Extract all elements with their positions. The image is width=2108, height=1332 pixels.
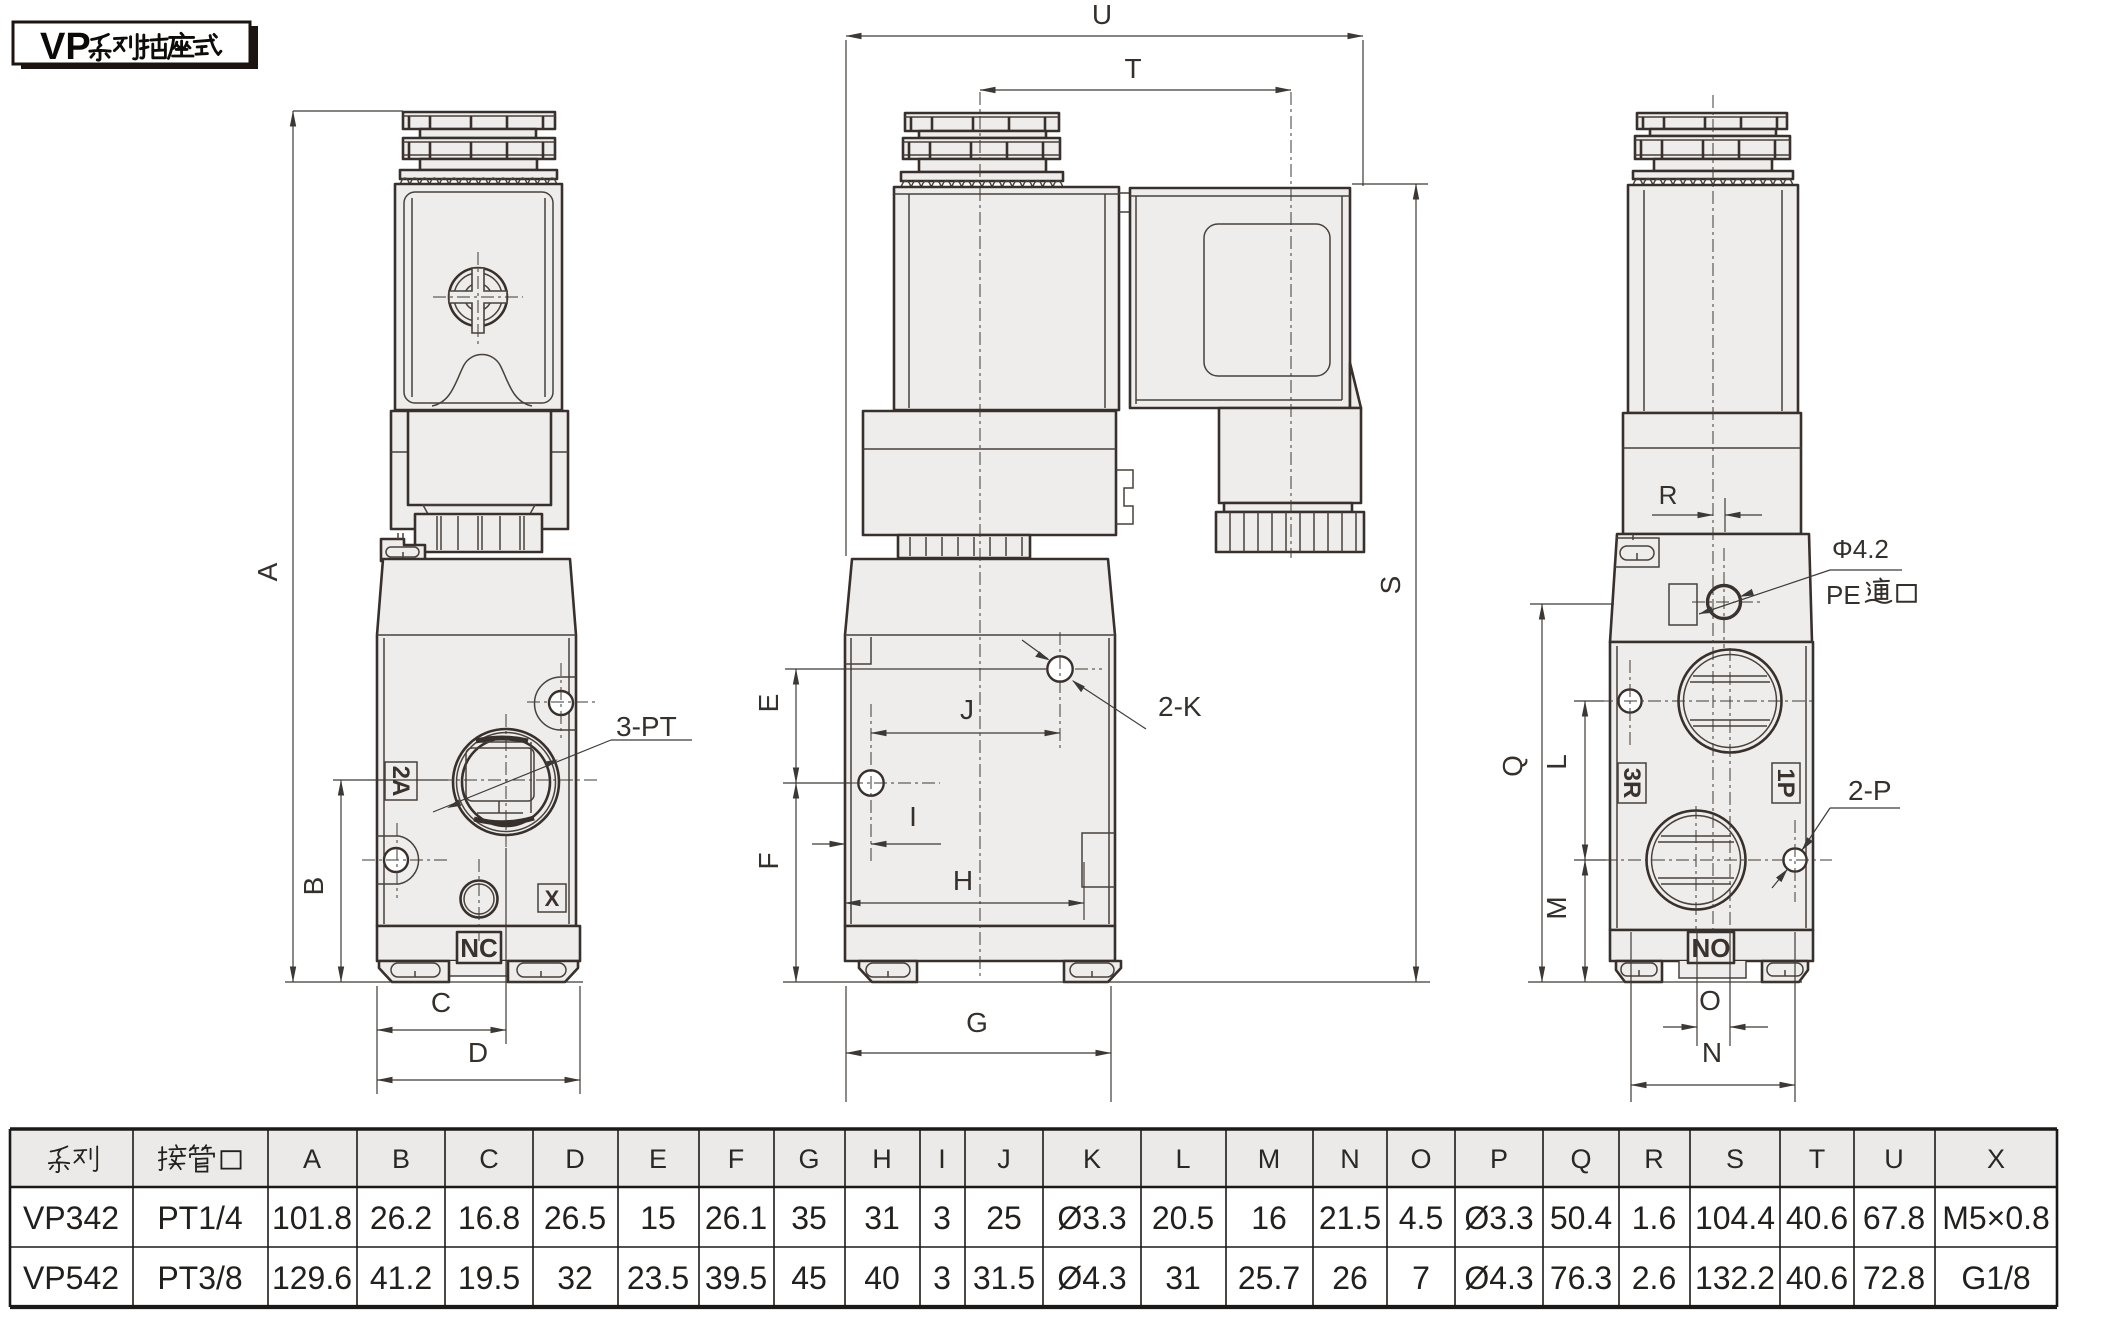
- svg-text:D: D: [565, 1144, 585, 1174]
- svg-text:Ø3.3: Ø3.3: [1464, 1200, 1533, 1236]
- svg-text:3-PT: 3-PT: [616, 711, 677, 742]
- svg-text:67.8: 67.8: [1863, 1200, 1925, 1236]
- svg-text:1P: 1P: [1772, 768, 1799, 797]
- svg-text:X: X: [1987, 1144, 2005, 1174]
- svg-text:O: O: [1699, 985, 1721, 1016]
- svg-text:19.5: 19.5: [458, 1260, 520, 1296]
- svg-text:Ø3.3: Ø3.3: [1057, 1200, 1126, 1236]
- svg-text:2-P: 2-P: [1848, 775, 1892, 806]
- svg-text:A: A: [252, 562, 283, 581]
- svg-text:Q: Q: [1497, 755, 1528, 777]
- svg-text:PT3/8: PT3/8: [157, 1260, 242, 1296]
- svg-text:U: U: [1884, 1144, 1904, 1174]
- svg-text:16.8: 16.8: [458, 1200, 520, 1236]
- svg-text:S: S: [1726, 1144, 1744, 1174]
- svg-text:40: 40: [864, 1260, 900, 1296]
- svg-text:J: J: [960, 694, 974, 725]
- svg-text:101.8: 101.8: [272, 1200, 352, 1236]
- svg-text:26: 26: [1332, 1260, 1368, 1296]
- svg-text:R: R: [1644, 1144, 1664, 1174]
- svg-text:23.5: 23.5: [627, 1260, 689, 1296]
- svg-text:O: O: [1410, 1144, 1431, 1174]
- svg-text:U: U: [1092, 0, 1112, 30]
- svg-text:76.3: 76.3: [1550, 1260, 1612, 1296]
- svg-text:K: K: [1083, 1144, 1101, 1174]
- svg-text:72.8: 72.8: [1863, 1260, 1925, 1296]
- svg-text:L: L: [1541, 754, 1572, 770]
- svg-text:M: M: [1258, 1144, 1281, 1174]
- svg-text:T: T: [1124, 53, 1141, 84]
- svg-text:Q: Q: [1570, 1144, 1591, 1174]
- svg-text:G1/8: G1/8: [1961, 1260, 2030, 1296]
- svg-text:T: T: [1809, 1144, 1826, 1174]
- svg-text:C: C: [479, 1144, 499, 1174]
- svg-text:3: 3: [933, 1260, 951, 1296]
- svg-text:B: B: [298, 877, 329, 896]
- svg-text:25.7: 25.7: [1238, 1260, 1300, 1296]
- svg-text:39.5: 39.5: [705, 1260, 767, 1296]
- svg-text:L: L: [1175, 1144, 1190, 1174]
- svg-text:26.2: 26.2: [370, 1200, 432, 1236]
- svg-text:E: E: [753, 694, 784, 713]
- svg-text:21.5: 21.5: [1319, 1200, 1381, 1236]
- svg-text:J: J: [997, 1144, 1011, 1174]
- svg-text:S: S: [1375, 576, 1406, 595]
- svg-text:H: H: [872, 1144, 892, 1174]
- svg-text:N: N: [1702, 1037, 1722, 1068]
- svg-text:C: C: [431, 987, 451, 1018]
- svg-text:M5×0.8: M5×0.8: [1942, 1200, 2050, 1236]
- svg-text:16: 16: [1251, 1200, 1287, 1236]
- svg-text:VP: VP: [40, 26, 91, 68]
- svg-text:2-K: 2-K: [1158, 691, 1202, 722]
- svg-text:41.2: 41.2: [370, 1260, 432, 1296]
- svg-text:26.5: 26.5: [544, 1200, 606, 1236]
- svg-text:G: G: [966, 1007, 988, 1038]
- svg-text:129.6: 129.6: [272, 1260, 352, 1296]
- svg-text:D: D: [468, 1037, 488, 1068]
- svg-text:VP542: VP542: [23, 1260, 119, 1296]
- svg-text:Φ4.2: Φ4.2: [1832, 534, 1889, 564]
- svg-text:15: 15: [640, 1200, 676, 1236]
- svg-text:F: F: [753, 852, 784, 869]
- svg-text:31.5: 31.5: [973, 1260, 1035, 1296]
- svg-text:40.6: 40.6: [1786, 1260, 1848, 1296]
- svg-text:45: 45: [791, 1260, 827, 1296]
- svg-text:Ø4.3: Ø4.3: [1464, 1260, 1533, 1296]
- svg-text:3R: 3R: [1618, 768, 1645, 799]
- svg-text:N: N: [1340, 1144, 1360, 1174]
- svg-text:B: B: [392, 1144, 410, 1174]
- svg-text:F: F: [728, 1144, 745, 1174]
- svg-text:X: X: [545, 886, 560, 911]
- svg-text:31: 31: [1165, 1260, 1201, 1296]
- svg-text:P: P: [1490, 1144, 1508, 1174]
- svg-text:50.4: 50.4: [1550, 1200, 1612, 1236]
- svg-text:H: H: [953, 865, 973, 896]
- svg-text:20.5: 20.5: [1152, 1200, 1214, 1236]
- svg-text:40.6: 40.6: [1786, 1200, 1848, 1236]
- svg-text:132.2: 132.2: [1695, 1260, 1775, 1296]
- svg-text:31: 31: [864, 1200, 900, 1236]
- svg-text:1.6: 1.6: [1632, 1200, 1676, 1236]
- svg-text:104.4: 104.4: [1695, 1200, 1775, 1236]
- svg-text:Ø4.3: Ø4.3: [1057, 1260, 1126, 1296]
- svg-text:PT1/4: PT1/4: [157, 1200, 242, 1236]
- svg-text:32: 32: [557, 1260, 593, 1296]
- svg-text:4.5: 4.5: [1399, 1200, 1443, 1236]
- svg-text:2.6: 2.6: [1632, 1260, 1676, 1296]
- svg-text:25: 25: [986, 1200, 1022, 1236]
- svg-text:3: 3: [933, 1200, 951, 1236]
- svg-text:M: M: [1541, 896, 1572, 919]
- svg-text:A: A: [303, 1144, 321, 1174]
- svg-text:2A: 2A: [387, 766, 414, 797]
- svg-text:VP342: VP342: [23, 1200, 119, 1236]
- svg-text:E: E: [649, 1144, 667, 1174]
- svg-text:PE: PE: [1826, 580, 1861, 610]
- svg-text:7: 7: [1412, 1260, 1430, 1296]
- svg-text:I: I: [909, 801, 917, 832]
- svg-text:I: I: [938, 1144, 946, 1174]
- svg-text:G: G: [798, 1144, 819, 1174]
- svg-text:R: R: [1659, 480, 1678, 510]
- svg-text:35: 35: [791, 1200, 827, 1236]
- svg-text:26.1: 26.1: [705, 1200, 767, 1236]
